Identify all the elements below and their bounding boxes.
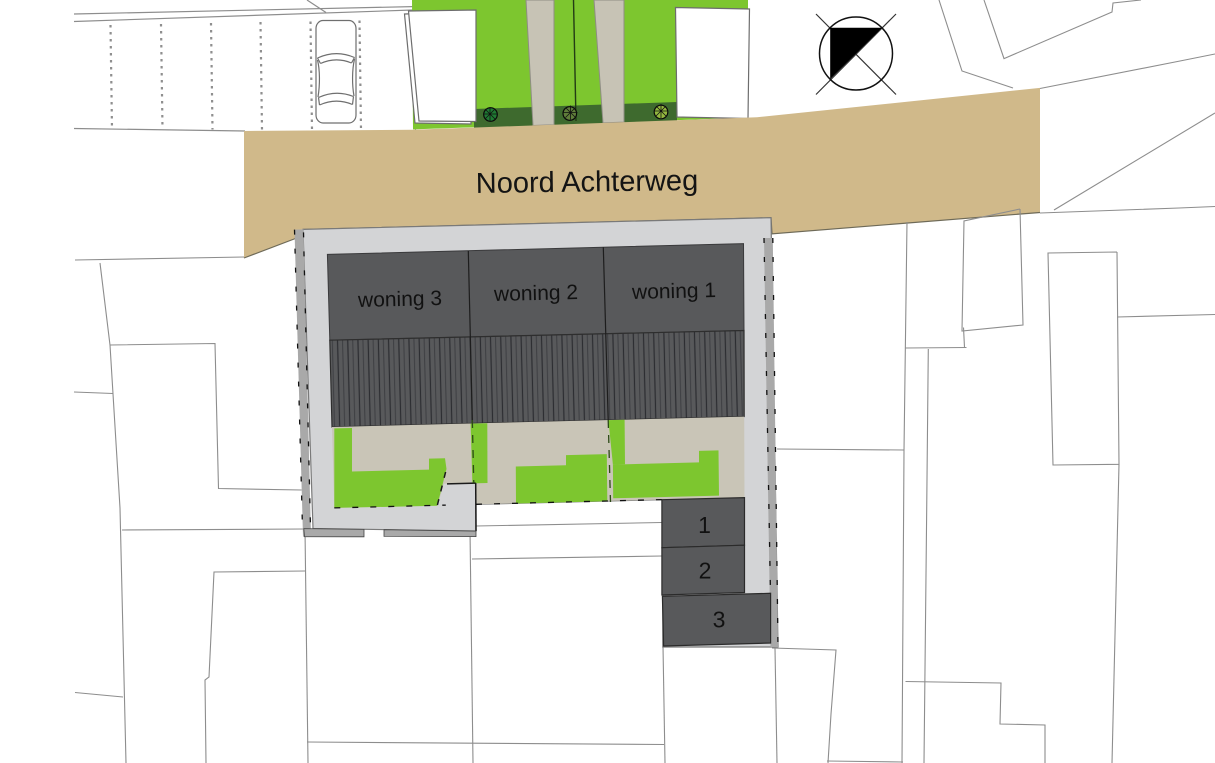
svg-text:Noord Achterweg: Noord Achterweg [476, 165, 699, 200]
svg-text:woning 2: woning 2 [493, 281, 579, 306]
svg-text:1: 1 [698, 512, 711, 538]
svg-text:2: 2 [699, 558, 712, 584]
svg-text:woning 3: woning 3 [357, 287, 443, 312]
svg-text:woning 1: woning 1 [631, 279, 717, 304]
svg-text:3: 3 [713, 607, 726, 633]
